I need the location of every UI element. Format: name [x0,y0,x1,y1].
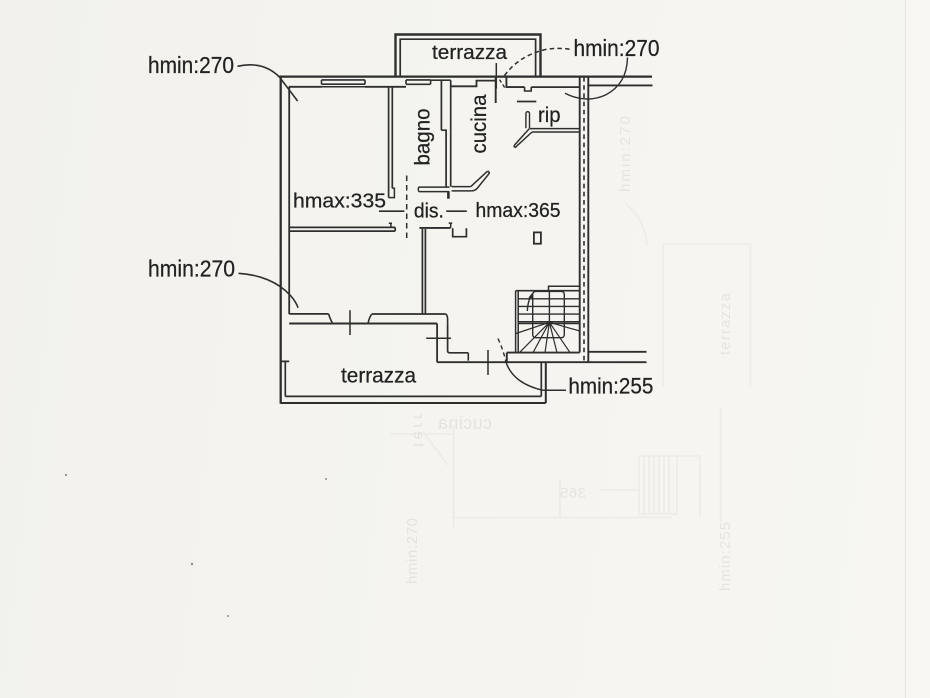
svg-text:hmin:255: hmin:255 [717,522,734,591]
svg-text:dis.: dis. [414,200,444,223]
svg-text:cucina: cucina [467,94,491,153]
svg-text:hmin:270: hmin:270 [148,52,234,78]
svg-text:terrazza: terrazza [341,363,416,387]
svg-text:hmin:270: hmin:270 [574,35,660,61]
svg-text:hmin:255: hmin:255 [568,373,653,398]
svg-text:hmin:270: hmin:270 [617,116,634,192]
svg-text:hmax:335: hmax:335 [293,189,386,212]
svg-text:terr: terr [410,414,427,447]
svg-text:bagno: bagno [411,108,435,165]
svg-text:rip: rip [538,104,561,127]
svg-text:hmax:365: hmax:365 [476,199,561,222]
svg-text:hmin:270: hmin:270 [404,518,421,584]
svg-text:365: 365 [560,485,586,502]
svg-text:cucina: cucina [437,413,492,433]
svg-text:hmin:270: hmin:270 [148,256,235,282]
svg-text:terrazza: terrazza [432,42,508,64]
svg-text:terrazza: terrazza [717,292,734,355]
